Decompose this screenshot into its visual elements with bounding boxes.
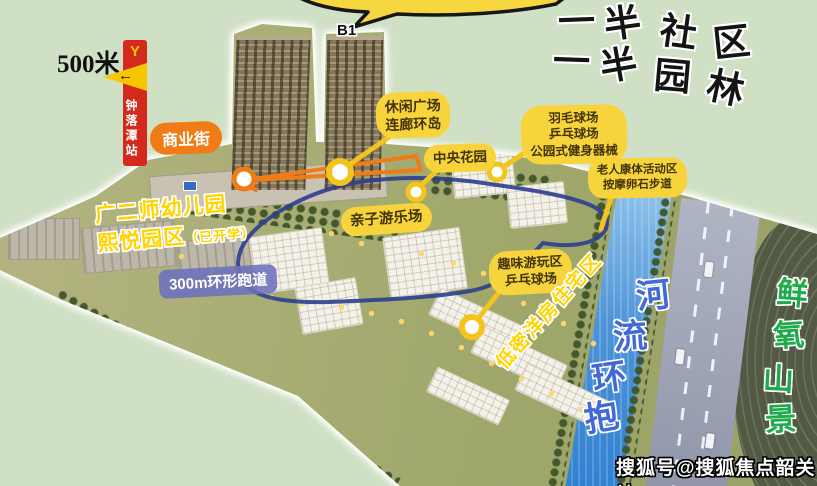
callout-line: 公园式健身器械 [530, 142, 618, 160]
kindergarten-note: （已开学） [185, 225, 256, 246]
residential-building [506, 181, 568, 229]
callout-leisure-plaza: 休闲广场 连廊环岛 [375, 91, 451, 140]
mountain-text-char: 鲜 [775, 267, 810, 315]
slogan-char: 一 [552, 42, 590, 80]
callout-biz-street: 商业街 [149, 121, 222, 155]
promo-image: 一 半 社 区 一 半 园 林 500米 Y 钟落潭站 ← B1 商业街 休闲广… [0, 0, 817, 486]
watermark: 搜狐号@搜狐焦点韶关站 [616, 453, 817, 486]
residential-building [294, 277, 363, 335]
running-track-label: 300m环形跑道 [158, 264, 278, 299]
metro-banner: Y 钟落潭站 [123, 40, 147, 166]
callout-line: 休闲广场 [384, 96, 441, 116]
left-arrow-icon: ← [118, 67, 133, 84]
tower-b1-label: B1 [337, 22, 356, 39]
callout-line: 乒乓球场 [530, 125, 618, 143]
callout-sports: 羽毛球场 乒乓球场 公园式健身器械 [520, 104, 627, 165]
slogan-char: 林 [704, 67, 748, 111]
mountain-text-char: 景 [764, 393, 797, 440]
slogan-char: 半 [602, 3, 644, 45]
car [704, 262, 714, 278]
car [705, 433, 715, 449]
highrise-tower-b1 [325, 36, 384, 190]
car [675, 349, 685, 365]
callout-elderly-zone: 老人康体活动区 按摩卵石步道 [588, 157, 687, 199]
slogan-char: 社 [658, 12, 700, 54]
callout-central-garden: 中央花园 [424, 143, 497, 173]
metro-logo-icon: Y [123, 43, 147, 60]
callout-line: 老人康体活动区 [597, 162, 678, 178]
slogan-char: 园 [652, 56, 692, 96]
mountain-text-char: 氧 [771, 309, 805, 356]
callout-line: 羽毛球场 [530, 109, 618, 127]
low-building [8, 218, 80, 260]
callout-line: 连廊环岛 [385, 114, 442, 134]
lowrise-slab [426, 366, 510, 425]
model-lights [0, 0, 3, 3]
slogan-char: 区 [711, 22, 752, 63]
slogan-char: 半 [597, 44, 640, 87]
kindergarten-campus-text: 熙悦园区 [97, 226, 187, 257]
highrise-tower [231, 36, 310, 190]
callout-line: 按摩卵石步道 [597, 177, 678, 193]
road-sign [183, 181, 197, 191]
metro-station-name: 钟落潭站 [123, 96, 147, 162]
slogan-char: 一 [557, 2, 595, 40]
residential-building [382, 227, 468, 299]
